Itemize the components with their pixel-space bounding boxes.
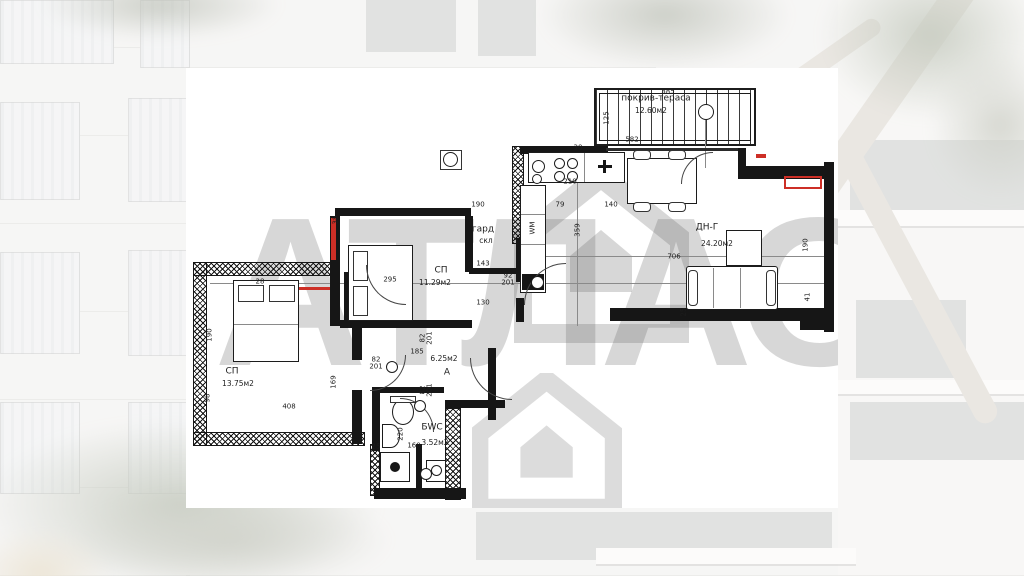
sofa-cushion-line bbox=[740, 268, 741, 308]
chair bbox=[668, 202, 686, 212]
bed-fold-line bbox=[234, 324, 298, 325]
wall-hatched bbox=[193, 262, 337, 276]
dimension-label: 25 bbox=[680, 308, 687, 317]
dimension-label: 82 201 bbox=[420, 383, 435, 396]
dimension-label: 140 bbox=[604, 201, 617, 208]
wall-hatched bbox=[445, 408, 461, 500]
room-label-bathroom: БWC bbox=[421, 423, 442, 432]
terrace-drain-symbol bbox=[698, 104, 714, 120]
utility-sink-bowl bbox=[431, 465, 442, 476]
dimension-label: 143 bbox=[476, 260, 489, 267]
unit-divider bbox=[521, 244, 545, 245]
dimension-label: 408 bbox=[282, 403, 295, 410]
room-area-roof-terrace: 12.60м2 bbox=[635, 107, 667, 115]
wall-segment bbox=[416, 444, 422, 490]
washer-drum bbox=[390, 462, 400, 472]
dimension-label: WM bbox=[529, 222, 536, 235]
door-knob-symbol bbox=[420, 468, 432, 480]
red-marker-box bbox=[784, 176, 822, 189]
door-arc-entrance bbox=[470, 358, 512, 400]
dimension-label: 41 bbox=[804, 293, 811, 302]
dimension-label: 125 bbox=[603, 111, 610, 124]
pillow bbox=[238, 285, 264, 302]
red-marker-tick bbox=[756, 154, 766, 158]
room-area-wardrobe: скл bbox=[479, 237, 492, 245]
wall-segment bbox=[516, 298, 524, 322]
sofa-armrest bbox=[688, 270, 698, 306]
dimension-label: 190 bbox=[471, 201, 484, 208]
cross-symbol bbox=[603, 160, 606, 173]
room-area-bedroom-left: 13.75м2 bbox=[222, 380, 254, 388]
wall-hatched bbox=[193, 432, 365, 446]
dimension-label: 25 bbox=[372, 443, 381, 450]
room-label-roof-terrace: покрив-тераса bbox=[621, 94, 690, 103]
room-area-corridor: 6.25м2 bbox=[430, 355, 457, 363]
dimension-label: 220 bbox=[397, 427, 404, 440]
screenshot-root: АТЛАС bbox=[0, 0, 1024, 576]
door-knob-symbol bbox=[386, 361, 398, 373]
wall-segment bbox=[445, 400, 505, 408]
dimension-label: 28 bbox=[256, 278, 265, 285]
dimension-label: 385 bbox=[661, 88, 674, 95]
dimension-label: 190 bbox=[206, 328, 213, 341]
chair bbox=[668, 150, 686, 160]
room-area-bedroom-mid: 11.29м2 bbox=[419, 279, 451, 287]
dimension-label: 160 bbox=[407, 442, 420, 449]
dimension-label: 169 bbox=[330, 375, 337, 388]
dimension-label: 359 bbox=[574, 223, 581, 236]
boiler-symbol bbox=[443, 152, 458, 167]
pillow bbox=[353, 286, 368, 316]
dimension-label: 82 201 bbox=[420, 331, 435, 344]
room-label-wardrobe: гард bbox=[472, 225, 494, 234]
room-area-bathroom: 3.52м2 bbox=[421, 439, 448, 447]
dimension-label: 82 201 bbox=[369, 357, 382, 372]
floorplan-drawing: СП13.75м2СП11.29м2ДН-Г24.20м2А6.25м2БWC3… bbox=[186, 68, 838, 508]
dimension-label: 92 201 bbox=[501, 273, 514, 288]
room-area-living-dining: 24.20м2 bbox=[701, 240, 733, 248]
sofa-cushion-line bbox=[713, 268, 714, 308]
dimension-label: 98 bbox=[204, 394, 211, 403]
pillow bbox=[269, 285, 295, 302]
unit-divider bbox=[521, 214, 545, 215]
dimension-label: 79 bbox=[556, 201, 565, 208]
wall-hatched bbox=[193, 262, 207, 446]
wall-hatched bbox=[742, 310, 774, 321]
dimension-label: 582 bbox=[625, 136, 638, 143]
dimension-label: 30 bbox=[574, 144, 583, 151]
wall-segment bbox=[824, 162, 834, 332]
wall-segment bbox=[352, 324, 362, 360]
room-label-bedroom-mid: СП bbox=[434, 266, 447, 275]
floorplan-card: АТЛАС bbox=[186, 68, 838, 508]
wall-segment bbox=[800, 320, 834, 330]
door-knob-symbol bbox=[414, 400, 426, 412]
wall-segment bbox=[335, 208, 471, 216]
wall-segment bbox=[352, 390, 362, 444]
chair bbox=[633, 150, 651, 160]
dimension-label: 295 bbox=[383, 276, 396, 283]
dimension-label: 130 bbox=[476, 299, 489, 306]
dimension-label: 706 bbox=[667, 253, 680, 260]
sofa bbox=[686, 266, 778, 310]
door-knob-symbol bbox=[531, 276, 544, 289]
dimension-label: 190 bbox=[802, 238, 809, 251]
chair bbox=[633, 202, 651, 212]
sink-bowl bbox=[532, 174, 542, 184]
dimension-label: 185 bbox=[410, 348, 423, 355]
wall-hatched bbox=[746, 168, 776, 179]
stove-burner bbox=[567, 158, 578, 169]
dimension-label: 210 bbox=[563, 178, 576, 185]
dimension-label: 38 bbox=[332, 216, 339, 225]
room-label-corridor: А bbox=[444, 368, 450, 377]
sink-bowl bbox=[532, 160, 545, 173]
stove-burner bbox=[554, 158, 565, 169]
counter-divider bbox=[584, 153, 585, 182]
room-label-bedroom-left: СП bbox=[225, 367, 238, 376]
sofa-armrest bbox=[766, 270, 776, 306]
room-label-living-dining: ДН-Г bbox=[696, 223, 719, 232]
wall-hatched bbox=[618, 310, 642, 321]
